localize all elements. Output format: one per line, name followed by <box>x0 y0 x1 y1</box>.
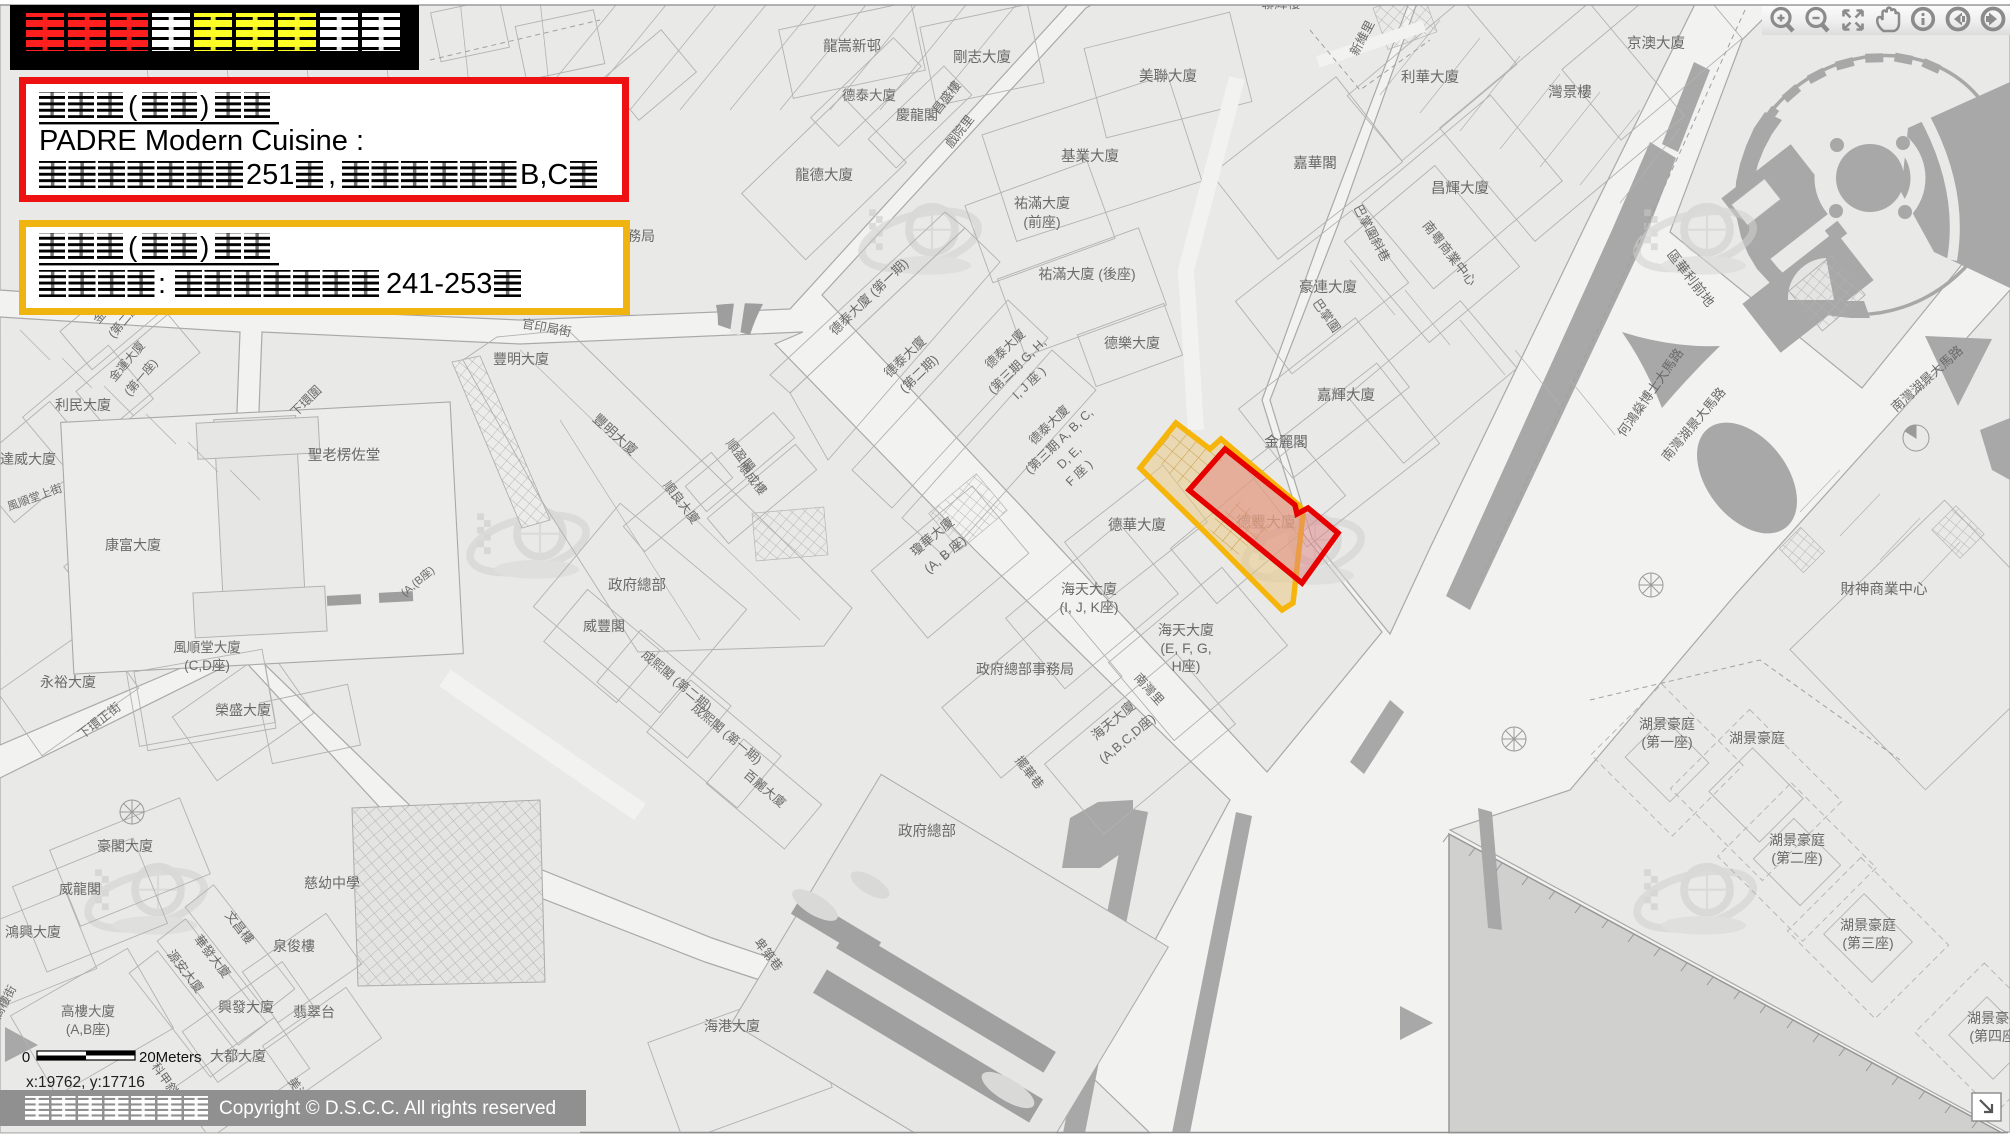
svg-text:威豐閣: 威豐閣 <box>583 618 625 634</box>
svg-text:政府總部: 政府總部 <box>898 822 956 840</box>
svg-text:嘉華閣: 嘉華閣 <box>1293 155 1337 172</box>
svg-text:豪閣大廈: 豪閣大廈 <box>97 838 153 854</box>
svg-text:): ) <box>200 231 209 262</box>
svg-text:湖景豪庭: 湖景豪庭 <box>1769 832 1825 848</box>
svg-text:海天大廈: 海天大廈 <box>1158 622 1214 638</box>
svg-text:豪連大廈: 豪連大廈 <box>1299 278 1357 296</box>
svg-text:京澳大廈: 京澳大廈 <box>1627 34 1685 52</box>
svg-text:金麗閣: 金麗閣 <box>1264 434 1308 451</box>
svg-text:榮盛大廈: 榮盛大廈 <box>215 702 271 718</box>
svg-text:湖景豪庭: 湖景豪庭 <box>1639 716 1695 732</box>
svg-text:基業大廈: 基業大廈 <box>1061 147 1119 165</box>
svg-text:PADRE Modern Cuisine :: PADRE Modern Cuisine : <box>39 125 364 157</box>
svg-text:祐滿大廈 (後座): 祐滿大廈 (後座) <box>1038 266 1135 282</box>
svg-text:利民大廈: 利民大廈 <box>55 397 111 413</box>
svg-text:豐明大廈: 豐明大廈 <box>493 351 549 367</box>
svg-text:20Meters: 20Meters <box>139 1049 202 1066</box>
svg-text:龍德大廈: 龍德大廈 <box>795 166 853 184</box>
svg-text:財神商業中心: 財神商業中心 <box>1841 581 1928 598</box>
svg-text:祐滿大廈: 祐滿大廈 <box>1014 195 1070 211</box>
svg-text:B,C: B,C <box>520 159 568 191</box>
svg-text:興發大廈: 興發大廈 <box>218 999 274 1015</box>
svg-text:湖景豪庭: 湖景豪庭 <box>1967 1010 2010 1026</box>
svg-text:風順堂大廈: 風順堂大廈 <box>173 639 241 655</box>
svg-text:(第三座): (第三座) <box>1842 935 1893 951</box>
svg-text:(A,B座): (A,B座) <box>66 1022 110 1037</box>
svg-text:251: 251 <box>246 159 294 191</box>
svg-text:康富大廈: 康富大廈 <box>105 537 161 553</box>
svg-text:(第二座): (第二座) <box>1771 850 1822 866</box>
svg-text:海天大廈: 海天大廈 <box>1061 581 1117 597</box>
svg-text:美聯大廈: 美聯大廈 <box>1139 67 1197 85</box>
svg-text:灣景樓: 灣景樓 <box>1548 84 1592 101</box>
svg-text:聖老楞佐堂: 聖老楞佐堂 <box>308 447 381 464</box>
svg-text:H座): H座) <box>1172 658 1201 674</box>
svg-text:(E, F, G,: (E, F, G, <box>1160 640 1211 656</box>
svg-text:(C,D座): (C,D座) <box>184 658 230 673</box>
svg-text:湖景豪庭: 湖景豪庭 <box>1729 730 1785 746</box>
svg-text:湖景豪庭: 湖景豪庭 <box>1840 917 1896 933</box>
svg-text::: : <box>158 268 166 300</box>
svg-text:永裕大廈: 永裕大廈 <box>40 674 96 690</box>
svg-text:,: , <box>328 159 336 191</box>
svg-text:0: 0 <box>22 1049 30 1066</box>
svg-text:(第一座): (第一座) <box>1641 734 1692 750</box>
svg-text:x:19762, y:17716: x:19762, y:17716 <box>26 1074 145 1091</box>
svg-text:嘉輝大廈: 嘉輝大廈 <box>1317 386 1375 404</box>
svg-text:德華大廈: 德華大廈 <box>1108 516 1166 534</box>
svg-text:龍嵩新邨: 龍嵩新邨 <box>823 38 881 55</box>
svg-text:政府總部: 政府總部 <box>608 576 666 594</box>
svg-text:泉俊樓: 泉俊樓 <box>273 938 315 954</box>
svg-text:): ) <box>200 90 209 121</box>
svg-text:達威大廈: 達威大廈 <box>0 451 56 467</box>
svg-text:(第四座): (第四座) <box>1969 1028 2010 1044</box>
svg-text:(: ( <box>128 90 138 121</box>
svg-text:Copyright © D.S.C.C. All right: Copyright © D.S.C.C. All rights reserved <box>219 1098 556 1119</box>
svg-text:德樂大廈: 德樂大廈 <box>1104 335 1160 351</box>
svg-text:(前座): (前座) <box>1023 214 1060 230</box>
svg-text:海港大廈: 海港大廈 <box>704 1018 760 1034</box>
svg-text:昌輝大廈: 昌輝大廈 <box>1431 179 1489 197</box>
svg-text:(I, J, K座): (I, J, K座) <box>1059 599 1118 615</box>
svg-text:威龍閣: 威龍閣 <box>59 881 101 897</box>
svg-text:241-253: 241-253 <box>386 268 492 300</box>
svg-text:大都大廈: 大都大廈 <box>210 1048 266 1064</box>
svg-text:鴻興大廈: 鴻興大廈 <box>5 924 61 940</box>
svg-text:德泰大廈: 德泰大廈 <box>842 87 896 103</box>
svg-text:利華大廈: 利華大廈 <box>1401 68 1459 86</box>
svg-text:剛志大廈: 剛志大廈 <box>953 48 1011 66</box>
svg-text:翡翠台: 翡翠台 <box>293 1004 335 1020</box>
svg-text:高樓大廈: 高樓大廈 <box>61 1003 115 1019</box>
svg-text:(: ( <box>128 231 138 262</box>
svg-text:政府總部事務局: 政府總部事務局 <box>976 661 1074 677</box>
svg-text:慈幼中學: 慈幼中學 <box>304 875 360 891</box>
